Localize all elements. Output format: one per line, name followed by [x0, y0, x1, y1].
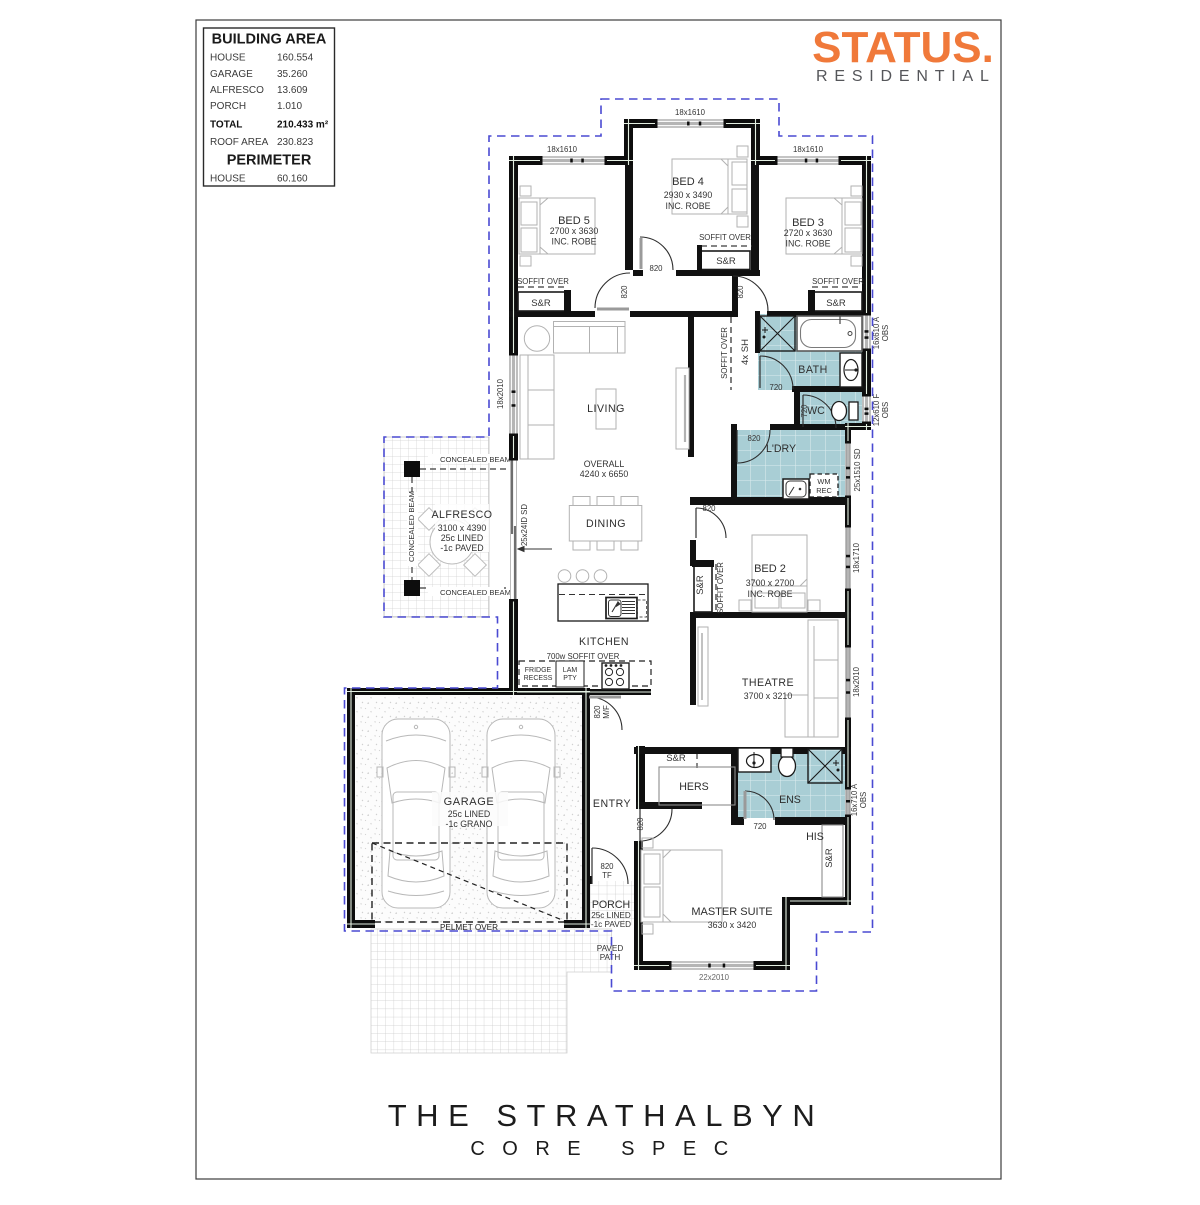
svg-text:820: 820 [747, 434, 761, 443]
svg-text:M/F: M/F [602, 705, 611, 719]
svg-text:CONCEALED BEAM: CONCEALED BEAM [440, 588, 511, 597]
svg-text:L'DRY: L'DRY [766, 443, 796, 455]
svg-text:2700 x 3630: 2700 x 3630 [550, 226, 599, 236]
svg-text:230.823: 230.823 [277, 137, 314, 148]
svg-text:KITCHEN: KITCHEN [579, 636, 629, 648]
svg-text:OBS: OBS [859, 792, 868, 808]
svg-text:3700 x 3210: 3700 x 3210 [744, 691, 793, 701]
svg-text:GARAGE: GARAGE [210, 69, 253, 80]
svg-text:25c LINED: 25c LINED [591, 911, 631, 920]
svg-text:720: 720 [769, 383, 783, 392]
svg-text:720: 720 [753, 822, 767, 831]
svg-text:TOTAL: TOTAL [210, 120, 242, 131]
svg-text:BED 2: BED 2 [754, 563, 786, 575]
svg-text:CONCEALED BEAM: CONCEALED BEAM [440, 455, 511, 464]
svg-text:OBS: OBS [881, 402, 890, 418]
svg-text:S&R: S&R [531, 298, 551, 309]
svg-text:18x2010: 18x2010 [496, 378, 505, 409]
svg-text:820: 820 [593, 705, 602, 719]
svg-text:160.554: 160.554 [277, 53, 314, 64]
svg-text:WM: WM [817, 477, 830, 486]
svg-text:INC. ROBE: INC. ROBE [552, 237, 597, 247]
svg-text:25x24ID SD: 25x24ID SD [520, 504, 529, 546]
svg-text:820: 820 [620, 285, 629, 299]
svg-text:S&R: S&R [695, 575, 706, 595]
svg-text:720: 720 [800, 404, 809, 418]
svg-text:18x2010: 18x2010 [852, 666, 861, 697]
svg-text:25x1510 SD: 25x1510 SD [853, 448, 862, 491]
svg-text:GARAGE: GARAGE [444, 796, 495, 808]
svg-text:THEATRE: THEATRE [742, 677, 794, 689]
svg-text:INC. ROBE: INC. ROBE [786, 239, 831, 249]
svg-text:S&R: S&R [824, 848, 835, 868]
svg-text:18x1610: 18x1610 [547, 145, 578, 154]
svg-text:25c LINED: 25c LINED [448, 809, 491, 819]
svg-text:700w SOFFIT OVER: 700w SOFFIT OVER [547, 652, 620, 661]
svg-text:CONCEALED BEAM: CONCEALED BEAM [407, 491, 416, 562]
svg-text:PAVED: PAVED [597, 944, 624, 953]
svg-text:CORE SPEC: CORE SPEC [470, 1138, 745, 1160]
svg-text:2720 x 3630: 2720 x 3630 [784, 228, 833, 238]
svg-text:LAM: LAM [563, 667, 578, 674]
svg-text:PERIMETER: PERIMETER [227, 153, 312, 169]
svg-text:PATH: PATH [600, 953, 621, 962]
svg-text:INC. ROBE: INC. ROBE [748, 589, 793, 599]
svg-text:PTY: PTY [563, 675, 577, 682]
svg-text:BUILDING AREA: BUILDING AREA [212, 32, 327, 48]
svg-text:LIVING: LIVING [587, 403, 625, 415]
svg-text:S&R: S&R [716, 256, 736, 267]
svg-text:16x610 A: 16x610 A [872, 316, 881, 349]
svg-text:ALFRESCO: ALFRESCO [210, 85, 264, 96]
svg-text:-1c PAVED: -1c PAVED [440, 543, 483, 553]
svg-text:13.609: 13.609 [277, 85, 308, 96]
svg-text:HOUSE: HOUSE [210, 174, 246, 185]
svg-text:18x1610: 18x1610 [675, 108, 706, 117]
svg-text:ENS: ENS [779, 794, 801, 806]
svg-text:820: 820 [702, 504, 716, 513]
svg-text:BATH: BATH [798, 364, 827, 376]
svg-text:WC: WC [807, 405, 825, 417]
svg-text:TF: TF [602, 871, 612, 880]
svg-text:3630 x 3420: 3630 x 3420 [708, 920, 757, 930]
svg-text:4x SH: 4x SH [740, 339, 751, 365]
svg-text:SOFFIT OVER: SOFFIT OVER [699, 233, 751, 242]
svg-text:18x1610: 18x1610 [793, 145, 824, 154]
svg-text:-1c PAVED: -1c PAVED [591, 920, 631, 929]
svg-text:2930 x 3490: 2930 x 3490 [664, 190, 713, 200]
svg-text:820: 820 [736, 285, 745, 299]
svg-text:ENTRY: ENTRY [593, 798, 631, 810]
svg-text:S&R: S&R [666, 753, 686, 764]
svg-text:THE STRATHALBYN: THE STRATHALBYN [388, 1098, 824, 1133]
svg-text:25c LINED: 25c LINED [441, 533, 484, 543]
svg-text:HIS: HIS [806, 831, 824, 843]
svg-text:820: 820 [636, 817, 645, 831]
svg-text:820: 820 [600, 862, 614, 871]
svg-text:4240 x 6650: 4240 x 6650 [580, 469, 629, 479]
svg-text:S&R: S&R [826, 298, 846, 309]
svg-text:210.433 m²: 210.433 m² [277, 120, 329, 131]
svg-text:3100 x 4390: 3100 x 4390 [438, 523, 487, 533]
svg-text:FRIDGE: FRIDGE [525, 667, 552, 674]
svg-text:STATUS.: STATUS. [812, 23, 994, 72]
svg-text:RECESS: RECESS [524, 675, 553, 682]
svg-text:PORCH: PORCH [210, 101, 246, 112]
svg-text:BED 4: BED 4 [672, 176, 704, 188]
svg-text:820: 820 [649, 264, 663, 273]
svg-text:18x1710: 18x1710 [852, 542, 861, 573]
svg-text:ROOF AREA: ROOF AREA [210, 137, 269, 148]
svg-text:DINING: DINING [586, 518, 626, 530]
svg-text:35.260: 35.260 [277, 69, 308, 80]
svg-text:PORCH: PORCH [592, 899, 630, 911]
svg-text:HOUSE: HOUSE [210, 53, 246, 64]
svg-text:22x2010: 22x2010 [699, 973, 730, 982]
svg-text:12x610 F: 12x610 F [872, 394, 881, 427]
svg-text:16x710 A: 16x710 A [850, 783, 859, 816]
svg-text:SOFFIT OVER: SOFFIT OVER [517, 277, 569, 286]
svg-text:3700 x 2700: 3700 x 2700 [746, 578, 795, 588]
svg-text:ALFRESCO: ALFRESCO [431, 509, 492, 521]
svg-text:OVERALL: OVERALL [584, 459, 625, 469]
svg-text:60.160: 60.160 [277, 174, 308, 185]
svg-text:SOFFIT OVER: SOFFIT OVER [716, 562, 725, 614]
svg-text:HERS: HERS [679, 781, 708, 793]
svg-text:OBS: OBS [881, 325, 890, 341]
svg-text:INC. ROBE: INC. ROBE [666, 201, 711, 211]
svg-text:-1c GRANO: -1c GRANO [446, 819, 493, 829]
svg-text:RESIDENTIAL: RESIDENTIAL [816, 68, 996, 85]
svg-text:REC: REC [816, 486, 832, 495]
svg-text:MASTER SUITE: MASTER SUITE [691, 906, 772, 918]
svg-text:SOFFIT OVER: SOFFIT OVER [812, 277, 864, 286]
svg-text:1.010: 1.010 [277, 101, 302, 112]
svg-text:SOFFIT OVER: SOFFIT OVER [720, 327, 729, 379]
